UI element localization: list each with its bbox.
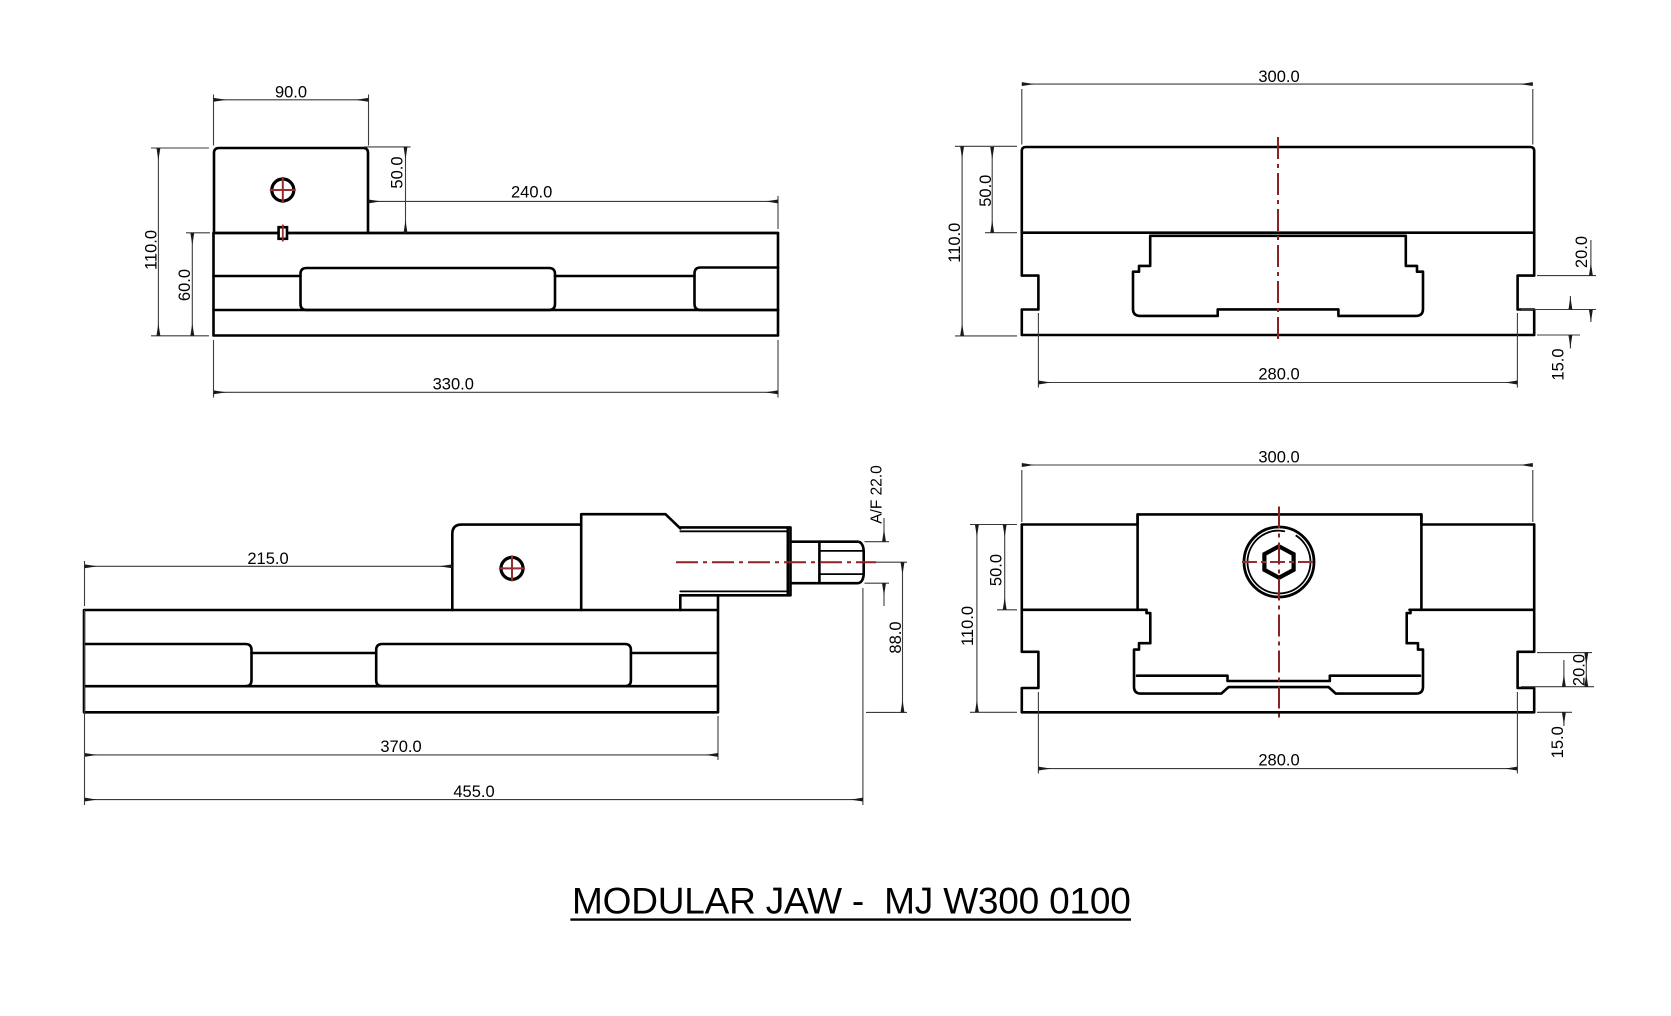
svg-text:300.0: 300.0 bbox=[1258, 68, 1299, 86]
svg-text:50.0: 50.0 bbox=[977, 175, 995, 207]
svg-text:370.0: 370.0 bbox=[380, 738, 421, 756]
svg-text:MODULAR JAW - MJ W300 0100: MODULAR JAW - MJ W300 0100 bbox=[572, 880, 1131, 921]
svg-text:60.0: 60.0 bbox=[176, 269, 194, 301]
svg-text:50.0: 50.0 bbox=[388, 156, 406, 188]
svg-text:455.0: 455.0 bbox=[453, 783, 494, 801]
svg-text:280.0: 280.0 bbox=[1258, 365, 1299, 383]
svg-text:20.0: 20.0 bbox=[1571, 654, 1589, 686]
svg-text:A/F 22.0: A/F 22.0 bbox=[869, 465, 886, 524]
svg-text:300.0: 300.0 bbox=[1258, 448, 1299, 466]
svg-text:110.0: 110.0 bbox=[946, 223, 964, 263]
svg-text:90.0: 90.0 bbox=[275, 84, 307, 102]
svg-text:110.0: 110.0 bbox=[959, 606, 977, 646]
svg-text:240.0: 240.0 bbox=[511, 183, 552, 201]
svg-text:88.0: 88.0 bbox=[887, 621, 905, 653]
svg-text:215.0: 215.0 bbox=[247, 550, 288, 568]
svg-text:110.0: 110.0 bbox=[143, 230, 161, 270]
svg-text:20.0: 20.0 bbox=[1573, 236, 1591, 268]
svg-text:15.0: 15.0 bbox=[1549, 726, 1567, 758]
svg-text:15.0: 15.0 bbox=[1550, 348, 1568, 380]
svg-text:280.0: 280.0 bbox=[1258, 752, 1299, 770]
svg-text:50.0: 50.0 bbox=[988, 554, 1006, 586]
svg-text:330.0: 330.0 bbox=[433, 376, 474, 394]
